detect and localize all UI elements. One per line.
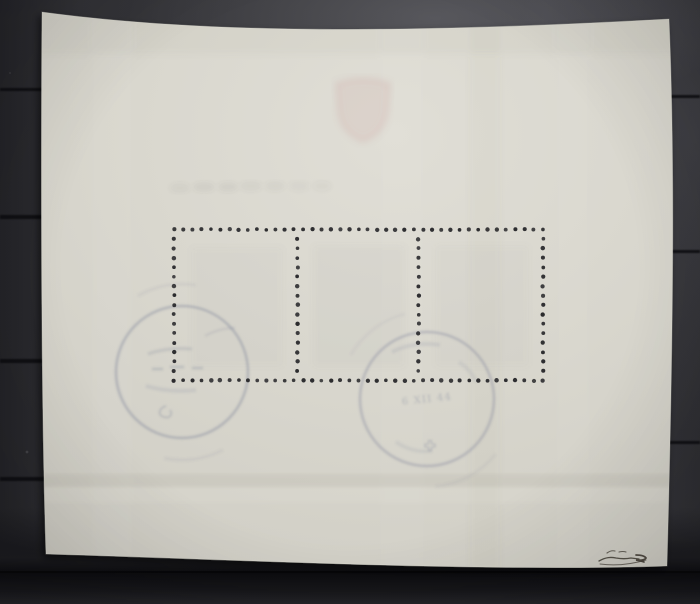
souvenir-sheet: 6 XII 44 (36, 10, 676, 570)
paper-crease (36, 474, 676, 503)
stamp-sheet-photo-svg: 6 XII 44 (0, 0, 700, 604)
photo-of-stamp-sheet: 6 XII 44 (0, 0, 700, 604)
